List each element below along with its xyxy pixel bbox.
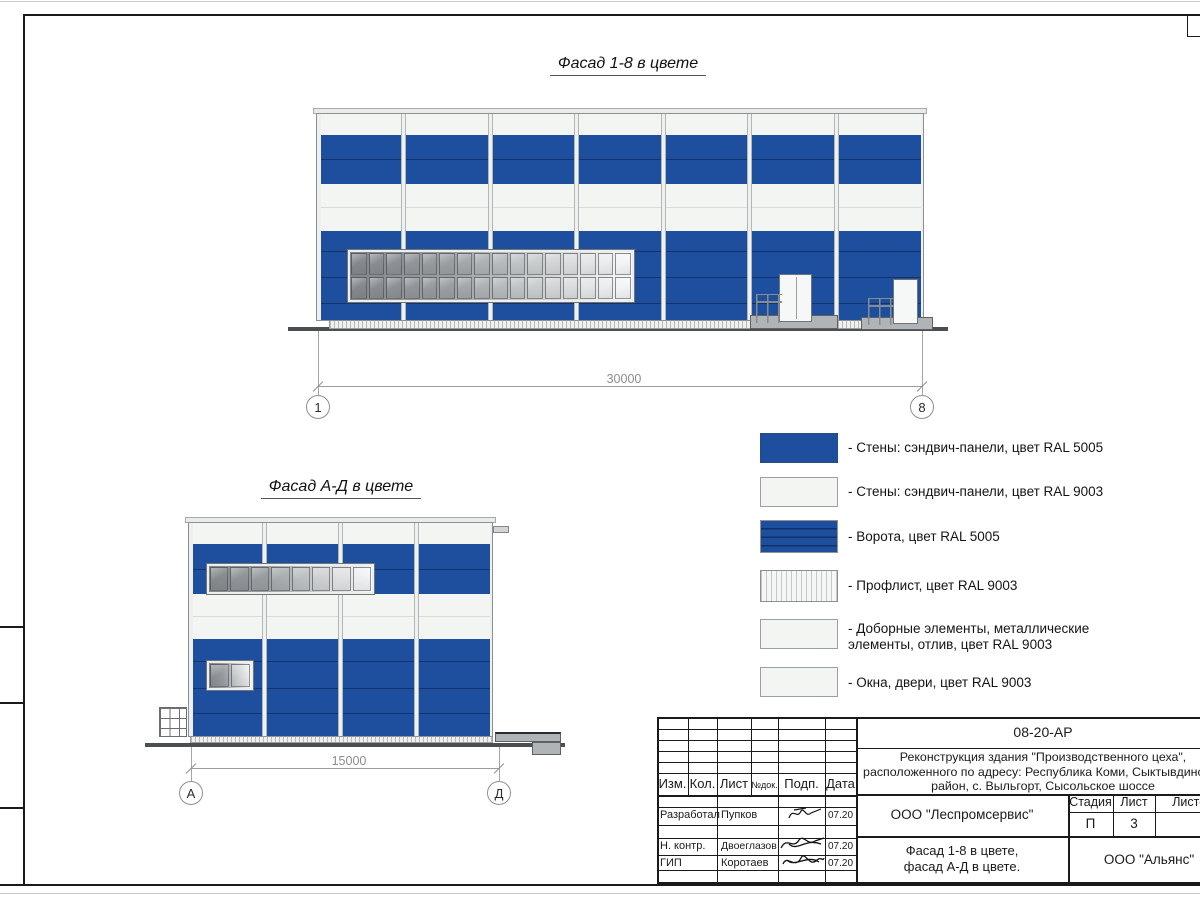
- corner-trim: [921, 114, 924, 320]
- tb-col-izm: Изм.: [657, 776, 688, 791]
- ground-line: [145, 743, 565, 747]
- corner-trim: [317, 114, 321, 320]
- tb-line: [657, 773, 856, 774]
- facade-mullion: [414, 523, 419, 736]
- window-pane: [615, 253, 631, 275]
- entrance-door: [893, 279, 918, 324]
- window-pane: [422, 253, 438, 275]
- window-pane: [369, 253, 385, 275]
- tb-sheet-label: Лист: [1113, 795, 1155, 809]
- tb-line: [717, 717, 718, 883]
- facade-1-8-drawing: [313, 108, 933, 348]
- window-pane: [230, 567, 248, 591]
- legend-label: - Окна, двери, цвет RAL 9003: [848, 675, 1031, 690]
- tb-date: 07.20: [826, 841, 855, 852]
- legend-swatch-walls-ral9003: [760, 477, 838, 507]
- window-pane: [422, 277, 438, 299]
- legend-swatch-gates-ral5005: [760, 520, 838, 553]
- tb-designer-org: ООО "Леспромсервис": [856, 794, 1068, 836]
- window-pane: [231, 664, 250, 687]
- window-pane: [351, 253, 367, 275]
- window-pane: [210, 664, 229, 687]
- railing: [868, 298, 894, 325]
- door-leaf-divider: [796, 277, 797, 319]
- legend-swatch-windows-doors: [760, 667, 838, 697]
- margin-divider: [0, 626, 23, 628]
- window-pane: [457, 253, 473, 275]
- exterior-ladder: [159, 707, 187, 737]
- small-window: [207, 661, 253, 690]
- entrance-door: [779, 274, 812, 322]
- panel-joint: [317, 303, 923, 304]
- legend-swatch-trim-elements: [760, 619, 838, 649]
- tb-line: [1068, 812, 1200, 813]
- window-pane: [474, 277, 490, 299]
- panel-joint: [317, 159, 923, 160]
- window-pane: [369, 277, 385, 299]
- tb-line: [657, 740, 856, 741]
- window-pane: [510, 253, 526, 275]
- legend-swatch-profiled-sheet: [760, 570, 838, 602]
- axis-marker-a: А: [179, 781, 203, 805]
- tb-line: [657, 751, 856, 752]
- tb-sheet-value: 3: [1113, 816, 1155, 831]
- railing: [756, 294, 782, 323]
- legend-label: - Стены: сэндвич-панели, цвет RAL 5005: [848, 440, 1103, 455]
- corner-trim: [189, 523, 193, 736]
- signature-razrabotal: [786, 805, 824, 823]
- window-pane: [563, 277, 579, 299]
- tb-name: Двоеглазов: [721, 840, 779, 852]
- window-pane: [598, 253, 614, 275]
- window-pane: [404, 277, 420, 299]
- window-pane: [210, 567, 228, 591]
- tb-col-podp: Подп.: [778, 776, 825, 791]
- facade-mullion: [338, 523, 343, 736]
- window-pane: [492, 277, 508, 299]
- window-pane: [598, 277, 614, 299]
- window-pane: [563, 253, 579, 275]
- ribbon-window: [207, 564, 374, 594]
- page-top-edge: [0, 1, 1200, 2]
- window-pane: [332, 567, 350, 591]
- tb-col-kol: Кол.: [688, 776, 717, 791]
- legend-label: - Ворота, цвет RAL 5005: [848, 529, 1000, 544]
- legend-swatch-walls-ral5005: [760, 433, 838, 463]
- drawing-sheet: Фасад 1-8 в цвете Фасад А-Д в цвете: [0, 0, 1200, 900]
- window-pane: [527, 277, 543, 299]
- legend-label: - Стены: сэндвич-панели, цвет RAL 9003: [848, 484, 1103, 499]
- tb-line: [657, 795, 856, 797]
- window-pane: [439, 253, 455, 275]
- facade-a-d-title: Фасад А-Д в цвете: [191, 478, 491, 499]
- tb-doc-number: 08-20-АР: [856, 724, 1200, 740]
- window-pane: [615, 277, 631, 299]
- tb-stage-value: П: [1068, 816, 1113, 831]
- margin-divider: [0, 807, 23, 809]
- tb-contractor-org: ООО "Альянс": [1068, 836, 1200, 883]
- tb-line: [657, 807, 856, 808]
- frame-left: [23, 14, 25, 886]
- tb-line: [657, 717, 659, 884]
- facade-mullion: [834, 114, 839, 320]
- axis-marker-1: 1: [306, 395, 330, 419]
- window-pane: [545, 253, 561, 275]
- page-bottom-edge: [0, 893, 1200, 894]
- window-pane: [312, 567, 330, 591]
- tb-date: 07.20: [826, 810, 855, 821]
- window-pane: [474, 253, 490, 275]
- frame-bottom: [0, 884, 1200, 886]
- facade-mullion: [747, 114, 752, 320]
- corner-trim: [490, 523, 493, 736]
- frame-top: [23, 14, 1200, 16]
- tb-name: Коротаев: [721, 857, 779, 869]
- panel-band-white: [317, 114, 923, 135]
- extension-line: [191, 747, 192, 781]
- ribbon-window: [348, 250, 634, 302]
- facade-a-d-drawing: [185, 517, 585, 762]
- dimension-value: 15000: [305, 754, 393, 768]
- dimension-line: [191, 768, 499, 769]
- axis-marker-d: Д: [487, 781, 511, 805]
- dimension-line: [318, 386, 922, 387]
- legend-label: - Профлист, цвет RAL 9003: [848, 578, 1017, 593]
- signature-nkontr-gip: [777, 832, 827, 872]
- window-pane: [580, 277, 596, 299]
- tb-col-data: Дата: [825, 776, 856, 791]
- tb-line: [657, 825, 856, 826]
- tb-sheet-title: Фасад 1-8 в цвете, фасад А-Д в цвете.: [856, 843, 1068, 874]
- facade-wall: [188, 522, 493, 737]
- side-platform: [495, 732, 561, 742]
- facade-mullion: [661, 114, 666, 320]
- window-pane: [527, 253, 543, 275]
- window-pane: [292, 567, 310, 591]
- window-pane: [457, 277, 473, 299]
- tb-role: Разработал: [660, 809, 716, 821]
- gutter-outlet: [493, 526, 509, 533]
- tb-line: [657, 717, 1200, 719]
- window-pane: [351, 277, 367, 299]
- tb-role: ГИП: [660, 857, 716, 869]
- tb-date: 07.20: [826, 858, 855, 869]
- window-pane: [439, 277, 455, 299]
- window-pane: [251, 567, 269, 591]
- tb-stage-label: Стадия: [1068, 795, 1113, 809]
- extension-line: [499, 747, 500, 781]
- tb-name: Пупков: [721, 809, 777, 821]
- facade-1-8-title: Фасад 1-8 в цвете: [478, 55, 778, 76]
- tb-sheets-label: Листов: [1155, 795, 1200, 809]
- tb-line: [856, 748, 1200, 749]
- window-pane: [492, 253, 508, 275]
- tb-col-list: Лист: [717, 776, 751, 791]
- window-pane: [386, 277, 402, 299]
- tb-line: [657, 729, 856, 730]
- tb-col-ndok: №док.: [751, 780, 778, 790]
- tb-role: Н. контр.: [660, 840, 716, 852]
- tb-line: [657, 762, 856, 763]
- axis-marker-8: 8: [910, 395, 934, 419]
- window-pane: [510, 277, 526, 299]
- window-pane: [353, 567, 371, 591]
- legend-label: - Доборные элементы, металлические элеме…: [848, 621, 1089, 653]
- side-platform-step: [532, 742, 561, 755]
- panel-joint: [317, 207, 923, 208]
- window-pane: [386, 253, 402, 275]
- window-pane: [545, 277, 561, 299]
- window-pane: [580, 253, 596, 275]
- window-pane: [271, 567, 289, 591]
- dimension-value: 30000: [580, 372, 668, 386]
- window-pane: [404, 253, 420, 275]
- margin-divider: [0, 702, 23, 704]
- tb-project-name: Реконструкция здания "Производственного …: [856, 750, 1200, 794]
- frame-corner-box: [1187, 14, 1200, 37]
- facade-mullion: [262, 523, 267, 736]
